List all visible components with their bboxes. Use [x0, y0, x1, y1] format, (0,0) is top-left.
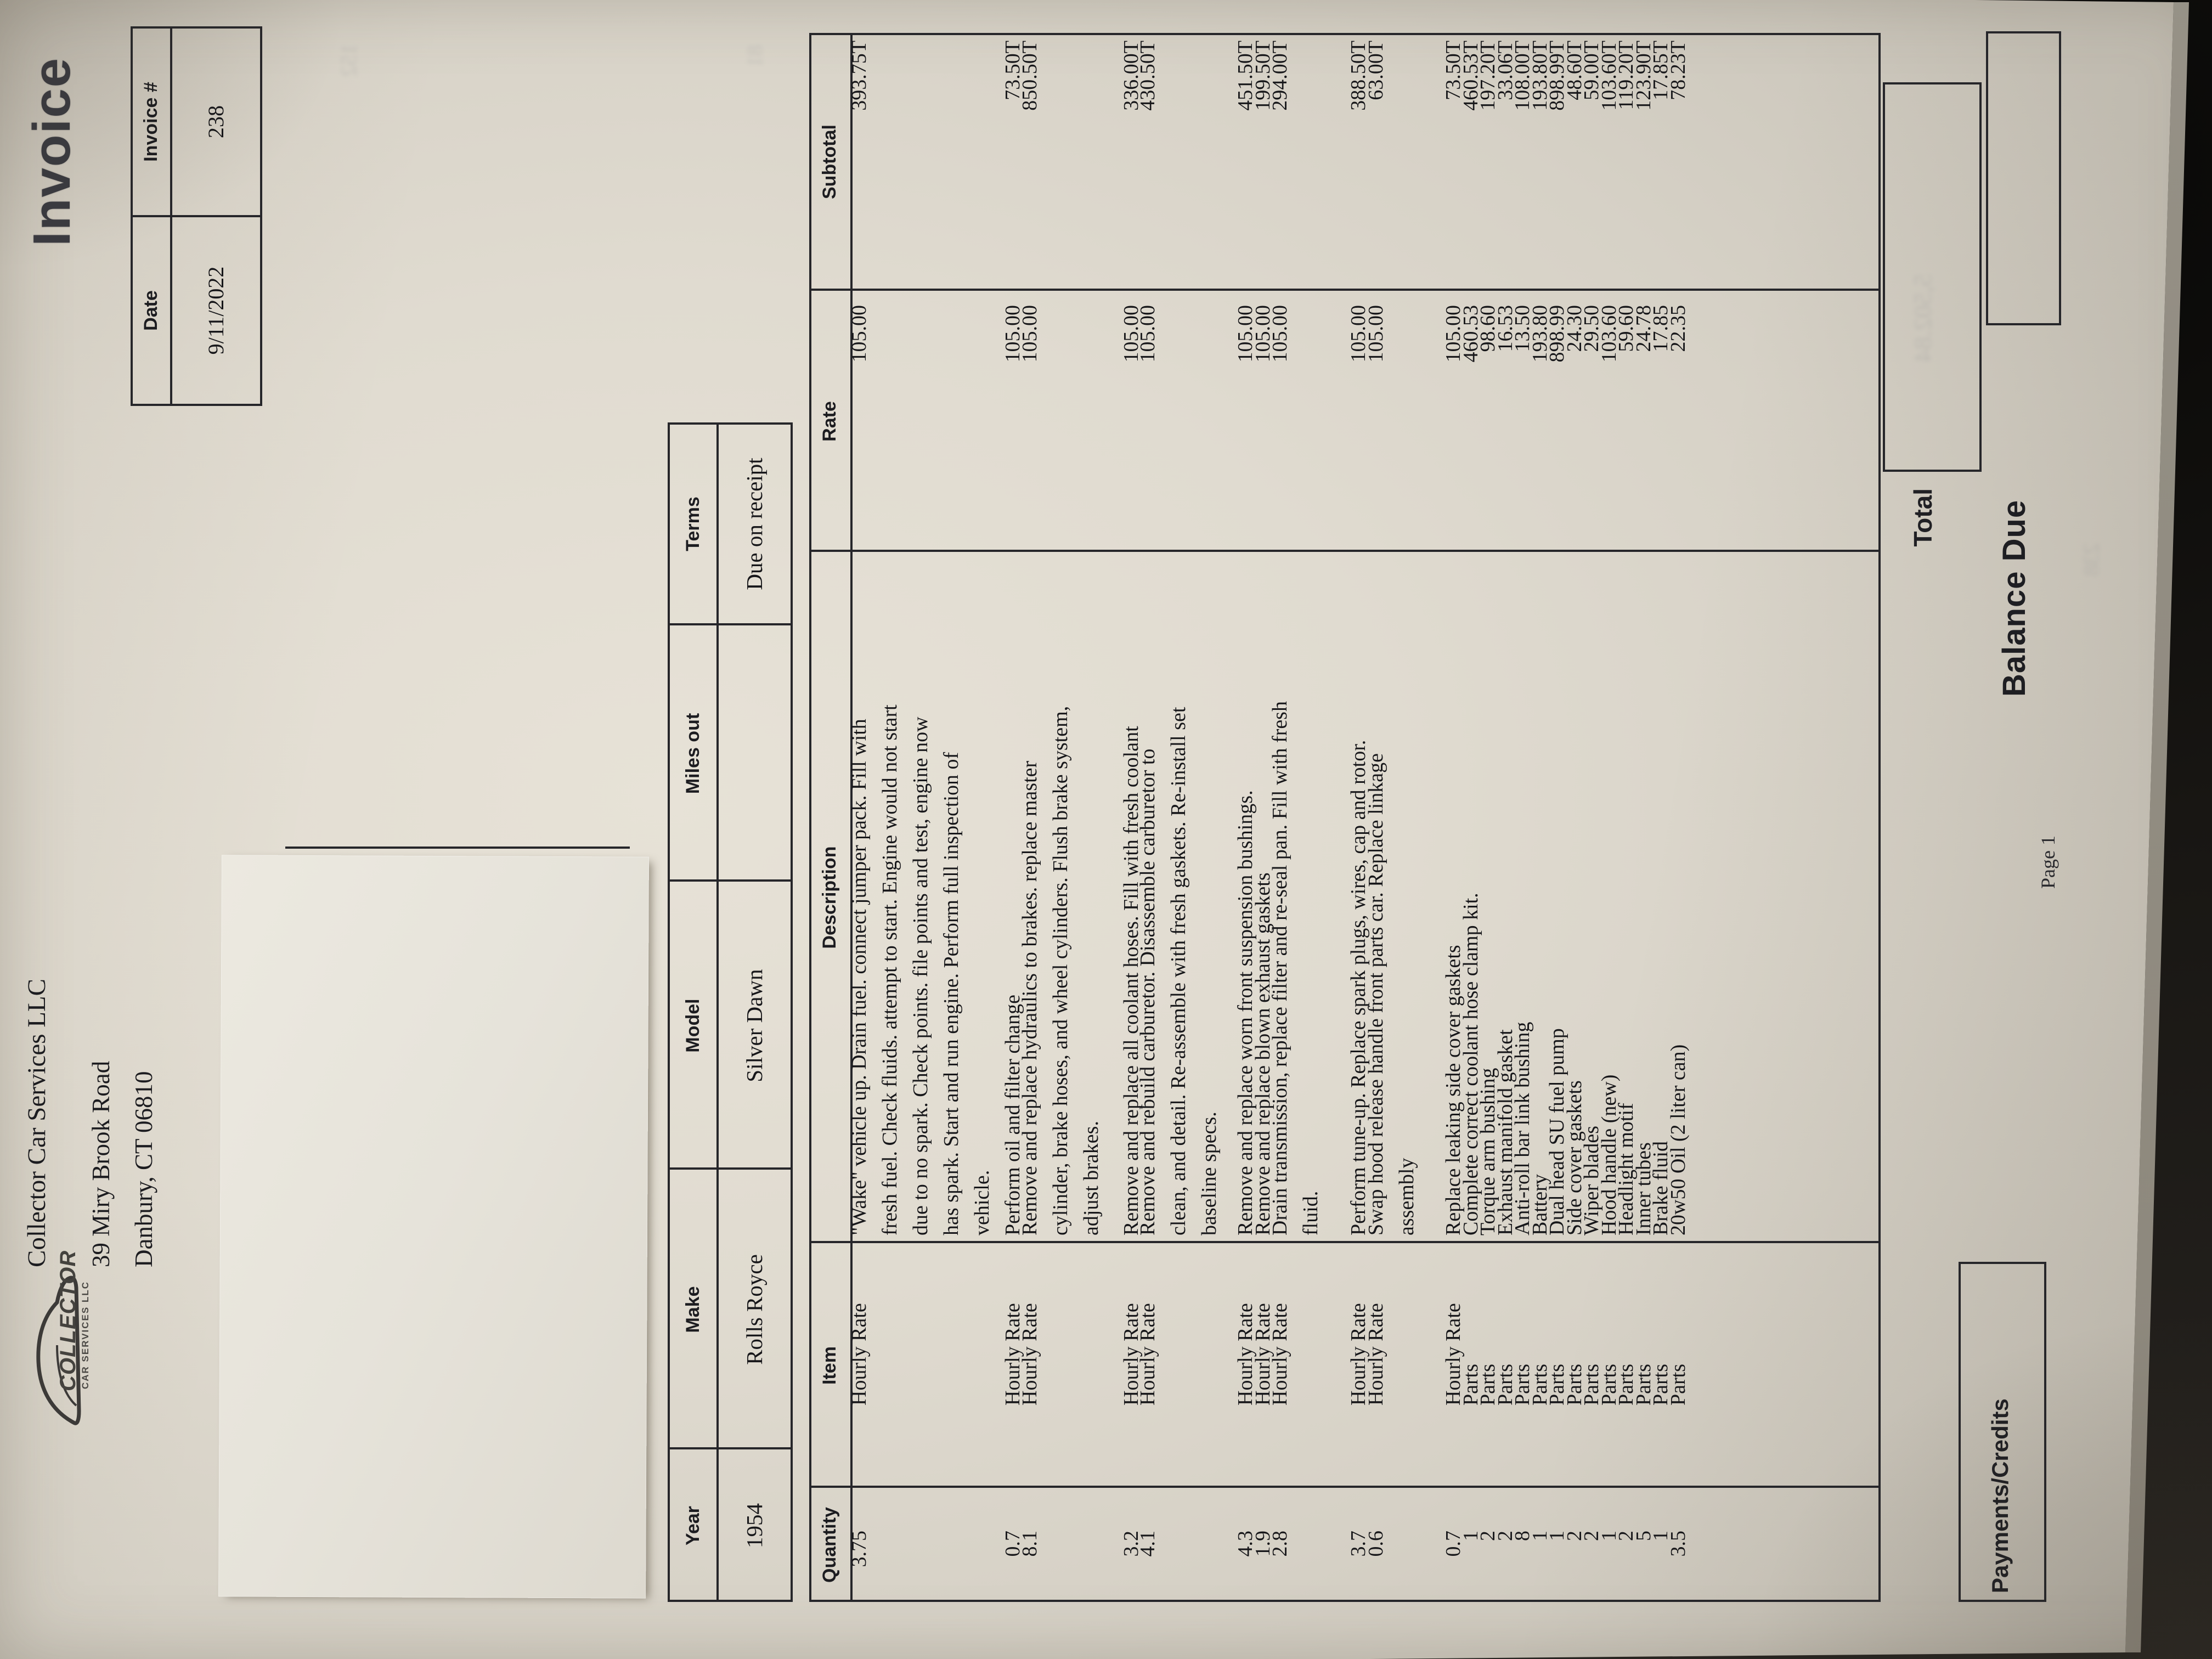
item-subtotal: 63.00T	[1361, 41, 1391, 291]
vehicle-header-year: Year	[671, 1452, 715, 1600]
bleed-through-mark: 5,502.84	[1908, 274, 1937, 362]
item-type: Hourly Rate	[844, 1303, 874, 1406]
item-description: 20w50 Oil (2 liter can)	[1663, 566, 1694, 1235]
bleed-through-mark: 152	[336, 44, 362, 77]
page-indicator: Page 1	[2036, 724, 2059, 889]
vehicle-value: Due on receipt	[720, 425, 789, 623]
line-items-table: QuantityItemDescriptionRateSubtotal 3.75…	[809, 33, 1881, 1602]
date-label: Date	[133, 217, 169, 404]
item-subtotal: 78.23T	[1663, 41, 1694, 291]
item-type: Hourly Rate	[1014, 1303, 1045, 1406]
item-description: Remove and replace hydraulics to brakes.…	[1014, 566, 1107, 1235]
items-header-subtotal: Subtotal	[811, 35, 848, 289]
item-quantity: 3.75	[844, 1531, 874, 1602]
item-type: Hourly Rate	[1132, 1303, 1163, 1406]
vehicle-value	[720, 628, 789, 879]
item-rate: 105.00	[1361, 305, 1391, 552]
balance-due-label: Balance Due	[1996, 252, 2033, 697]
invoice-number-label: Invoice #	[133, 29, 169, 215]
date-value: 9/11/2022	[172, 217, 259, 404]
item-subtotal: 294.00T	[1265, 41, 1295, 291]
item-subtotal: 850.50T	[1014, 41, 1045, 291]
item-description: Remove and rebuild carburetor. Disassemb…	[1132, 566, 1224, 1235]
item-quantity: 0.6	[1361, 1531, 1391, 1602]
item-quantity: 3.5	[1663, 1531, 1694, 1602]
items-header-description: Description	[811, 554, 848, 1241]
item-subtotal: 430.50T	[1132, 41, 1163, 291]
items-header-rate: Rate	[811, 293, 848, 550]
item-type: Hourly Rate	[1265, 1303, 1295, 1406]
total-label: Total	[1908, 488, 1938, 719]
item-rate: 105.00	[1132, 305, 1163, 552]
invoice-title: Invoice	[22, 57, 82, 246]
item-quantity: 8.1	[1014, 1531, 1045, 1602]
invoice-number-value: 238	[172, 29, 259, 215]
company-name: Collector Car Services LLC	[22, 979, 52, 1267]
invoice-meta-table: Date Invoice # 9/11/2022 238	[131, 26, 262, 406]
vehicle-header-terms: Terms	[671, 425, 715, 623]
vehicle-header-model: Model	[671, 884, 715, 1167]
covered-billto-box-border	[285, 847, 630, 849]
item-description: "Wake" vehicle up. Drain fuel. connect j…	[844, 566, 997, 1235]
company-address-line1: 39 Miry Brook Road	[87, 1061, 115, 1267]
item-rate: 105.00	[1265, 305, 1295, 552]
vehicle-value: Rolls Royce	[720, 1172, 789, 1447]
vehicle-header-make: Make	[671, 1172, 715, 1447]
item-description: Drain transmission, replace filter and r…	[1265, 566, 1326, 1235]
item-type: Parts	[1663, 1364, 1694, 1406]
item-subtotal: 393.75T	[844, 41, 874, 291]
item-quantity: 4.1	[1132, 1531, 1163, 1602]
items-header-quantity: Quantity	[811, 1490, 848, 1600]
vehicle-value: Silver Dawn	[720, 884, 789, 1167]
logo-word-2: CAR SERVICES LLC	[80, 1281, 91, 1389]
photographed-invoice: COLLECTOR CAR SERVICES LLC Collector Car…	[0, 0, 2212, 1659]
item-type: Hourly Rate	[1361, 1303, 1391, 1406]
item-quantity: 2.8	[1265, 1531, 1295, 1602]
logo-word-1: COLLECTOR	[56, 1250, 81, 1391]
company-address-line2: Danbury, CT 06810	[129, 1071, 158, 1267]
item-rate: 22.35	[1663, 305, 1694, 552]
vehicle-value: 1954	[720, 1452, 789, 1600]
vehicle-info-table: YearMakeModelMiles outTerms1954Rolls Roy…	[668, 422, 793, 1602]
item-rate: 105.00	[1014, 305, 1045, 552]
company-logo: COLLECTOR CAR SERVICES LLC	[24, 1271, 101, 1427]
vehicle-header-miles-out: Miles out	[671, 628, 715, 879]
payments-credits-label: Payments/Credits	[1987, 1398, 2013, 1593]
bleed-through-mark: 238	[2078, 543, 2104, 576]
item-rate: 105.00	[844, 305, 874, 552]
item-description: Swap hood release handle front parts car…	[1361, 566, 1422, 1235]
payments-credits-box: Payments/Credits	[1959, 1262, 2046, 1602]
privacy-note-overlay	[218, 855, 649, 1598]
items-header-item: Item	[811, 1245, 848, 1486]
bleed-through-mark: 81	[742, 45, 768, 67]
